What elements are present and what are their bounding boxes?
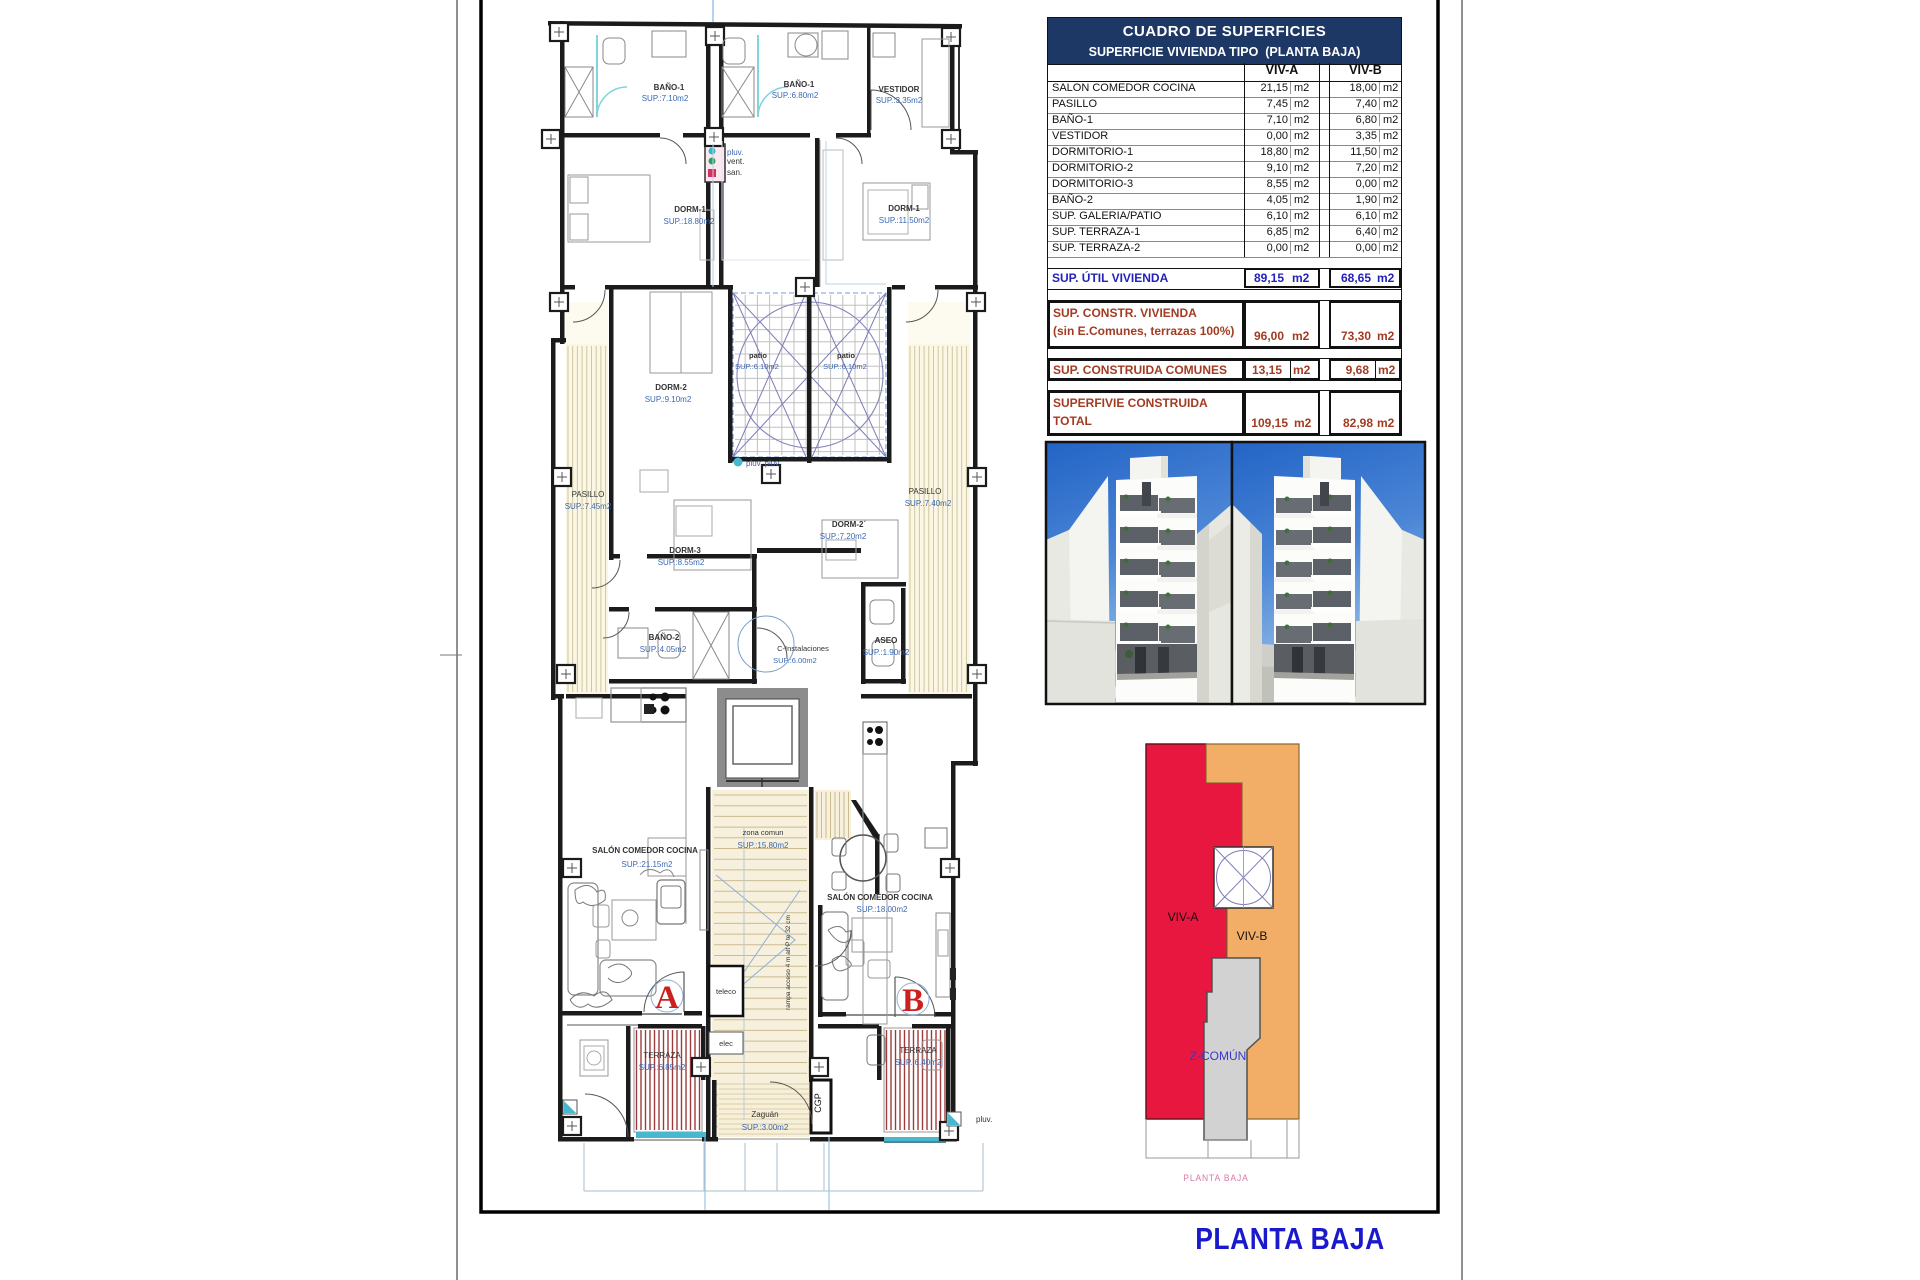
svg-text:BAÑO-1: BAÑO-1 [784,80,815,89]
svg-text:SUP.:21.15m2: SUP.:21.15m2 [622,860,674,869]
svg-text:PASILLO: PASILLO [572,490,605,499]
svg-text:A: A [655,980,679,1016]
svg-text:PASILLO: PASILLO [909,487,942,496]
svg-text:Zaguán: Zaguán [751,1110,778,1119]
svg-text:elec: elec [719,1039,733,1048]
svg-text:SUP.:18.80m2: SUP.:18.80m2 [664,217,716,226]
svg-text:rampa acceso 4 m alt P te 32 c: rampa acceso 4 m alt P te 32 cm [785,915,792,1010]
svg-text:SALÓN COMEDOR COCINA: SALÓN COMEDOR COCINA [592,846,698,855]
svg-text:SUP.:18.00m2: SUP.:18.00m2 [857,905,909,914]
svg-text:SALÓN COMEDOR COCINA: SALÓN COMEDOR COCINA [827,893,933,902]
svg-text:SUP.:6.40m2: SUP.:6.40m2 [895,1058,942,1067]
svg-text:patio: patio [749,351,767,360]
svg-text:vent.: vent. [727,157,744,166]
svg-text:DORM-1: DORM-1 [888,204,920,213]
svg-text:VESTIDOR: VESTIDOR [879,85,920,94]
svg-text:SUP.:7.20m2: SUP.:7.20m2 [820,532,867,541]
svg-text:patio: patio [837,351,855,360]
svg-text:SUP.:4.05m2: SUP.:4.05m2 [640,645,687,654]
svg-text:pluv.: pluv. [976,1115,992,1124]
svg-text:TERRAZA: TERRAZA [643,1051,681,1060]
svg-text:PLANTA BAJA: PLANTA BAJA [1183,1172,1248,1182]
svg-text:DORM-3: DORM-3 [669,546,701,555]
svg-text:DORM-2´: DORM-2´ [832,520,867,529]
svg-text:teleco: teleco [716,987,736,996]
svg-text:PLANTA BAJA: PLANTA BAJA [1195,1222,1384,1256]
svg-text:ASEO: ASEO [875,636,898,645]
svg-text:san.: san. [727,168,742,177]
svg-text:SUP.:6.85m2: SUP.:6.85m2 [639,1063,686,1072]
svg-text:B: B [902,983,924,1019]
svg-text:VIV-A: VIV-A [1168,910,1199,924]
svg-text:SUP.:6.00m2: SUP.:6.00m2 [773,656,817,665]
svg-text:SUP.:7.40m2: SUP.:7.40m2 [905,499,952,508]
svg-text:zona comun: zona comun [743,828,784,837]
svg-text:Z-COMÚN: Z-COMÚN [1190,1048,1247,1063]
svg-text:pluv. pluv.: pluv. pluv. [746,459,781,468]
svg-text:DORM-2: DORM-2 [655,383,687,392]
svg-text:SUP.:6.10m2: SUP.:6.10m2 [735,362,779,371]
svg-text:SUP.:6.80m2: SUP.:6.80m2 [772,91,819,100]
svg-text:SUP.:8.55m2: SUP.:8.55m2 [658,558,705,567]
svg-text:SUP.:9.10m2: SUP.:9.10m2 [645,395,692,404]
svg-text:SUP.:1.90m2: SUP.:1.90m2 [863,648,910,657]
svg-text:C-Instalaciones: C-Instalaciones [777,644,829,653]
svg-text:VIV-B: VIV-B [1237,929,1268,943]
svg-text:SUP.:15.80m2: SUP.:15.80m2 [738,841,790,850]
svg-text:BAÑO-2: BAÑO-2 [649,633,680,642]
svg-text:SUP.:6.10m2: SUP.:6.10m2 [823,362,867,371]
svg-text:pluv.: pluv. [727,148,743,157]
svg-text:SUP.:11.50m2: SUP.:11.50m2 [879,216,930,225]
svg-text:DORM-1: DORM-1 [674,205,706,214]
svg-text:SUP.:7.10m2: SUP.:7.10m2 [642,94,689,103]
svg-text:BAÑO-1: BAÑO-1 [654,83,685,92]
svg-text:SUP.:3.00m2: SUP.:3.00m2 [742,1123,789,1132]
svg-text:CGP: CGP [813,1093,823,1113]
svg-text:SUP.:3.35m2: SUP.:3.35m2 [876,96,923,105]
svg-text:SUP.:7.45m2: SUP.:7.45m2 [565,502,612,511]
svg-text:TERRAZA: TERRAZA [899,1046,937,1055]
